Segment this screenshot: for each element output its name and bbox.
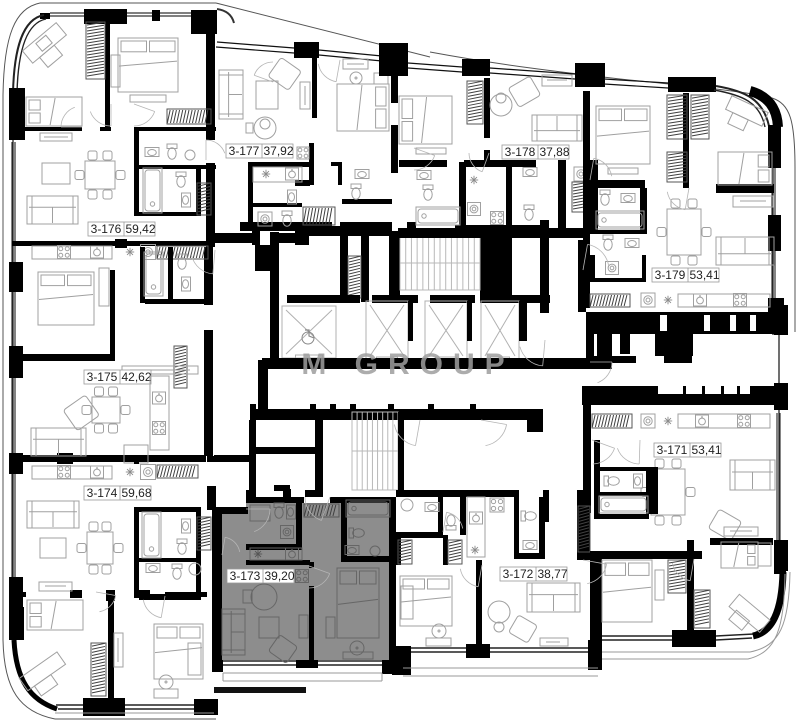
svg-text:3-179: 3-179 [655, 268, 686, 282]
svg-text:37,92: 37,92 [263, 144, 293, 158]
svg-text:59,42: 59,42 [125, 222, 155, 236]
svg-text:39,20: 39,20 [264, 569, 294, 583]
svg-text:53,41: 53,41 [691, 443, 721, 457]
svg-text:3-178: 3-178 [505, 145, 536, 159]
svg-text:3-174: 3-174 [87, 486, 118, 500]
svg-text:3-173: 3-173 [230, 569, 261, 583]
svg-text:37,88: 37,88 [539, 145, 569, 159]
svg-text:M GROUP: M GROUP [301, 348, 514, 381]
svg-text:3-177: 3-177 [229, 144, 260, 158]
svg-text:3-175: 3-175 [87, 370, 118, 384]
svg-text:3-172: 3-172 [503, 567, 534, 581]
svg-text:3-171: 3-171 [657, 443, 688, 457]
svg-text:53,41: 53,41 [689, 268, 719, 282]
svg-text:38,77: 38,77 [537, 567, 567, 581]
svg-text:59,68: 59,68 [121, 486, 151, 500]
svg-text:42,62: 42,62 [121, 370, 151, 384]
svg-text:3-176: 3-176 [91, 222, 122, 236]
